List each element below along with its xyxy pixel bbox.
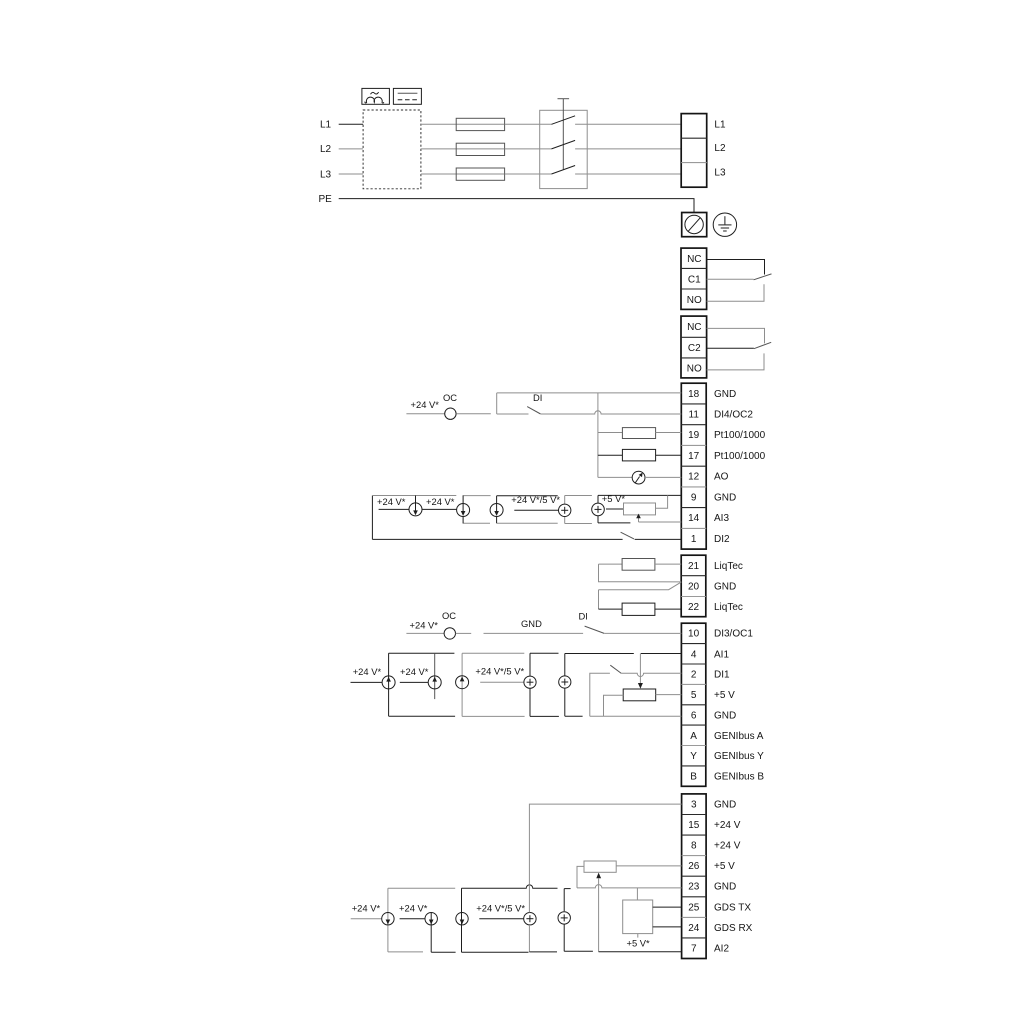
svg-text:GND: GND (521, 618, 542, 629)
svg-text:22: 22 (688, 602, 700, 613)
svg-text:NC: NC (687, 322, 701, 333)
svg-text:+24 V*: +24 V* (410, 619, 439, 630)
svg-text:OC: OC (442, 610, 456, 621)
svg-text:+5 V*: +5 V* (602, 493, 626, 504)
svg-text:Pt100/1000: Pt100/1000 (714, 451, 766, 462)
svg-text:GND: GND (714, 799, 736, 810)
svg-text:+24 V*/5 V*: +24 V*/5 V* (511, 494, 560, 505)
svg-text:DI1: DI1 (714, 670, 730, 681)
svg-text:21: 21 (688, 561, 700, 572)
svg-text:L2: L2 (714, 143, 726, 154)
svg-text:GDS TX: GDS TX (714, 902, 751, 913)
svg-text:23: 23 (688, 882, 700, 893)
svg-text:10: 10 (688, 629, 700, 640)
svg-text:12: 12 (688, 472, 700, 483)
svg-text:4: 4 (691, 649, 697, 660)
svg-text:+24 V*: +24 V* (353, 666, 382, 677)
svg-text:25: 25 (688, 902, 700, 913)
svg-text:GND: GND (714, 882, 736, 893)
svg-text:GND: GND (714, 582, 736, 593)
svg-text:B: B (690, 772, 697, 783)
svg-text:C2: C2 (688, 343, 701, 354)
svg-text:NO: NO (687, 295, 702, 306)
svg-text:+5 V: +5 V (714, 861, 735, 872)
svg-text:14: 14 (688, 513, 700, 524)
svg-text:3: 3 (691, 799, 697, 810)
svg-text:GND: GND (714, 389, 736, 400)
svg-text:+24 V*: +24 V* (400, 666, 429, 677)
svg-text:GENIbus A: GENIbus A (714, 731, 764, 742)
svg-text:L1: L1 (714, 119, 726, 130)
svg-text:GND: GND (714, 493, 736, 504)
svg-text:L1: L1 (320, 120, 332, 131)
svg-text:LiqTec: LiqTec (714, 561, 743, 572)
svg-text:24: 24 (688, 923, 700, 934)
svg-text:DI2: DI2 (714, 534, 730, 545)
svg-text:8: 8 (691, 841, 697, 852)
svg-text:DI: DI (533, 392, 542, 403)
svg-text:26: 26 (688, 861, 700, 872)
svg-text:PE: PE (319, 194, 333, 205)
svg-text:Y: Y (690, 751, 697, 762)
svg-text:17: 17 (688, 451, 700, 462)
svg-text:AI3: AI3 (714, 513, 729, 524)
svg-text:L3: L3 (714, 168, 726, 179)
svg-text:+24 V*: +24 V* (352, 902, 381, 913)
svg-text:NO: NO (687, 363, 702, 374)
svg-text:18: 18 (688, 389, 700, 400)
svg-text:9: 9 (691, 493, 697, 504)
svg-text:+24 V*: +24 V* (377, 496, 406, 507)
svg-text:AI2: AI2 (714, 943, 729, 954)
svg-text:19: 19 (688, 430, 700, 441)
svg-text:+24 V*: +24 V* (411, 399, 440, 410)
svg-text:Pt100/1000: Pt100/1000 (714, 430, 766, 441)
svg-text:5: 5 (691, 690, 697, 701)
svg-text:15: 15 (688, 820, 700, 831)
svg-text:+5 V*: +5 V* (627, 937, 651, 948)
svg-text:GND: GND (714, 710, 736, 721)
svg-text:+24 V*: +24 V* (399, 902, 428, 913)
svg-text:1: 1 (691, 534, 697, 545)
svg-text:GDS RX: GDS RX (714, 923, 753, 934)
svg-text:+24 V*: +24 V* (426, 496, 455, 507)
svg-text:A: A (690, 731, 697, 742)
svg-text:C1: C1 (688, 275, 701, 286)
svg-text:+24 V*/5 V*: +24 V*/5 V* (476, 902, 525, 913)
svg-text:OC: OC (443, 392, 457, 403)
svg-text:11: 11 (689, 410, 700, 421)
svg-text:AI1: AI1 (714, 649, 729, 660)
svg-text:GENIbus Y: GENIbus Y (714, 751, 764, 762)
svg-text:6: 6 (691, 710, 697, 721)
svg-text:+24 V: +24 V (714, 820, 741, 831)
svg-text:L2: L2 (320, 144, 332, 155)
svg-text:DI: DI (579, 611, 588, 622)
svg-text:L3: L3 (320, 169, 332, 180)
svg-text:NC: NC (687, 254, 701, 265)
svg-text:AO: AO (714, 472, 729, 483)
svg-text:DI4/OC2: DI4/OC2 (714, 410, 753, 421)
svg-text:7: 7 (691, 943, 697, 954)
svg-text:+5 V: +5 V (714, 690, 735, 701)
svg-text:DI3/OC1: DI3/OC1 (714, 629, 753, 640)
svg-text:GENIbus B: GENIbus B (714, 772, 764, 783)
svg-text:2: 2 (691, 670, 697, 681)
svg-text:20: 20 (688, 582, 700, 593)
svg-text:+24 V*/5 V*: +24 V*/5 V* (475, 666, 524, 677)
svg-text:LiqTec: LiqTec (714, 602, 743, 613)
svg-text:+24 V: +24 V (714, 841, 741, 852)
